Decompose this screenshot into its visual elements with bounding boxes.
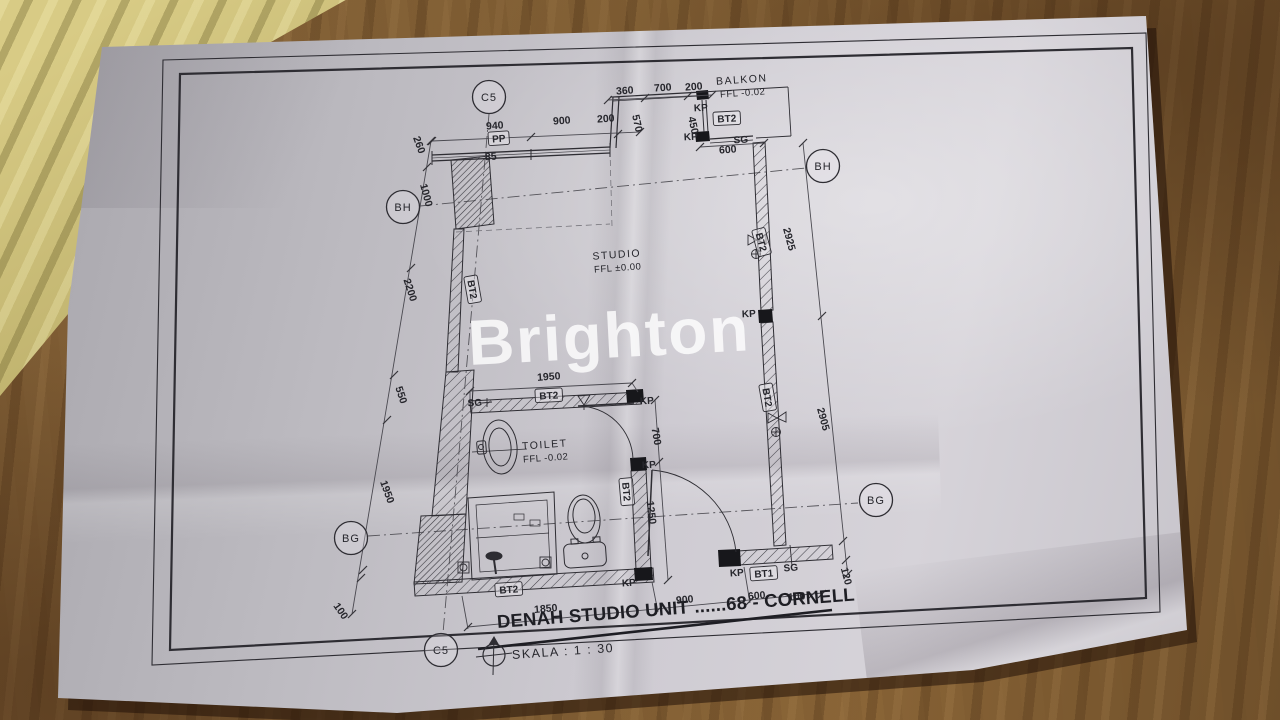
- marker-label-sg: SG: [733, 135, 748, 147]
- svg-text:260: 260: [410, 135, 427, 156]
- dim-label: 200: [597, 112, 615, 125]
- svg-text:C5: C5: [433, 645, 449, 657]
- svg-text:BT2: BT2: [539, 390, 559, 402]
- svg-text:900: 900: [553, 114, 571, 127]
- svg-text:940: 940: [486, 119, 504, 132]
- dim-label: 700: [649, 427, 664, 446]
- svg-text:BH: BH: [814, 161, 831, 173]
- brighton-watermark: Brighton: [466, 291, 752, 380]
- svg-text:TOILET: TOILET: [522, 437, 568, 452]
- svg-text:550: 550: [392, 385, 409, 406]
- dim-label: 550: [392, 385, 409, 406]
- marker-label-bt2: BT2: [464, 275, 482, 304]
- grid-bubble-bg: BG: [860, 484, 893, 517]
- dim-label: 900: [553, 114, 571, 127]
- marker-label-kp: KP: [730, 568, 745, 580]
- dim-label: 570: [629, 114, 644, 134]
- marker-label-bt2: BT2: [495, 582, 523, 597]
- svg-text:2200: 2200: [401, 277, 420, 303]
- svg-text:BG: BG: [342, 533, 360, 545]
- marker-label-kp: KP: [622, 578, 637, 590]
- svg-text:200: 200: [597, 112, 615, 125]
- svg-text:KP: KP: [694, 103, 709, 115]
- grid-bubble-bh: BH: [807, 150, 840, 183]
- photo-scene: C5BHBGC5BHBG 940900200360700200570450600…: [0, 0, 1280, 720]
- marker-label-kp: KP: [694, 103, 709, 115]
- room-label-balkon: BALKONFFL -0.02: [716, 72, 769, 101]
- marker-label-bt2: BT2: [535, 388, 563, 403]
- svg-text:KP: KP: [622, 578, 637, 590]
- washbasin: [472, 419, 527, 476]
- svg-text:BT2: BT2: [759, 387, 773, 408]
- svg-text:SG: SG: [733, 135, 748, 147]
- svg-text:C5: C5: [481, 92, 497, 104]
- svg-text:KP: KP: [640, 396, 655, 408]
- marker-label-sg: SG: [467, 398, 482, 410]
- grid-bubble-bh: BH: [387, 191, 420, 224]
- grid-bubble-c5: C5: [425, 634, 458, 667]
- svg-text:360: 360: [616, 84, 634, 97]
- grid-bubble-bg: BG: [335, 522, 368, 555]
- svg-text:BT1: BT1: [754, 568, 774, 580]
- marker-label-bt2: BT2: [713, 111, 741, 126]
- dim-label: 2200: [401, 277, 420, 303]
- svg-text:KP: KP: [642, 460, 657, 472]
- svg-text:STUDIO: STUDIO: [592, 247, 641, 262]
- dim-label: 940: [486, 119, 504, 132]
- dim-label: 260: [410, 135, 427, 156]
- dim-label: 200: [685, 80, 703, 93]
- svg-text:BT2: BT2: [619, 482, 632, 502]
- svg-text:SG: SG: [467, 398, 482, 410]
- marker-label-sg: SG: [783, 563, 798, 575]
- marker-label-pp: PP: [488, 131, 510, 146]
- svg-text:700: 700: [649, 427, 664, 446]
- svg-text:FFL -0.02: FFL -0.02: [720, 86, 766, 100]
- svg-text:2925: 2925: [780, 226, 798, 252]
- svg-text:BALKON: BALKON: [716, 72, 768, 88]
- svg-text:SG: SG: [783, 563, 798, 575]
- shower-area: [468, 492, 557, 580]
- dim-label: 700: [654, 81, 672, 94]
- svg-text:BH: BH: [394, 202, 411, 214]
- svg-text:2905: 2905: [814, 406, 832, 432]
- dim-label: 1950: [377, 479, 396, 505]
- svg-text:KP: KP: [730, 568, 745, 580]
- svg-text:85: 85: [485, 151, 498, 164]
- svg-text:FFL ±0.00: FFL ±0.00: [594, 261, 642, 275]
- svg-text:700: 700: [654, 81, 672, 94]
- dim-label: 85: [485, 151, 498, 164]
- svg-text:BG: BG: [867, 495, 885, 507]
- svg-text:200: 200: [685, 80, 703, 93]
- dim-label: 2905: [814, 406, 832, 432]
- svg-text:100: 100: [331, 601, 351, 622]
- marker-label-kp: KP: [640, 396, 655, 408]
- marker-label-kp: KP: [684, 132, 699, 144]
- room-label-studio: STUDIOFFL ±0.00: [592, 247, 642, 275]
- marker-label-kp: KP: [642, 460, 657, 472]
- marker-label-bt2: BT2: [619, 478, 635, 506]
- svg-text:KP: KP: [684, 132, 699, 144]
- toilet-wc: [563, 494, 607, 569]
- svg-text:PP: PP: [492, 134, 506, 146]
- room-label-toilet: TOILETFFL -0.02: [522, 437, 569, 465]
- grid-bubble-c5: C5: [473, 81, 506, 114]
- svg-text:BT2: BT2: [499, 584, 519, 596]
- svg-text:BT2: BT2: [717, 113, 737, 125]
- svg-text:BT2: BT2: [464, 279, 478, 300]
- svg-text:FFL -0.02: FFL -0.02: [523, 451, 569, 465]
- marker-label-bt1: BT1: [750, 566, 778, 581]
- dim-label: 2925: [780, 226, 798, 252]
- svg-text:1950: 1950: [377, 479, 396, 505]
- svg-text:570: 570: [629, 114, 644, 134]
- dim-label: 360: [616, 84, 634, 97]
- north-arrow-icon: [476, 637, 512, 675]
- dim-label: 100: [331, 601, 351, 622]
